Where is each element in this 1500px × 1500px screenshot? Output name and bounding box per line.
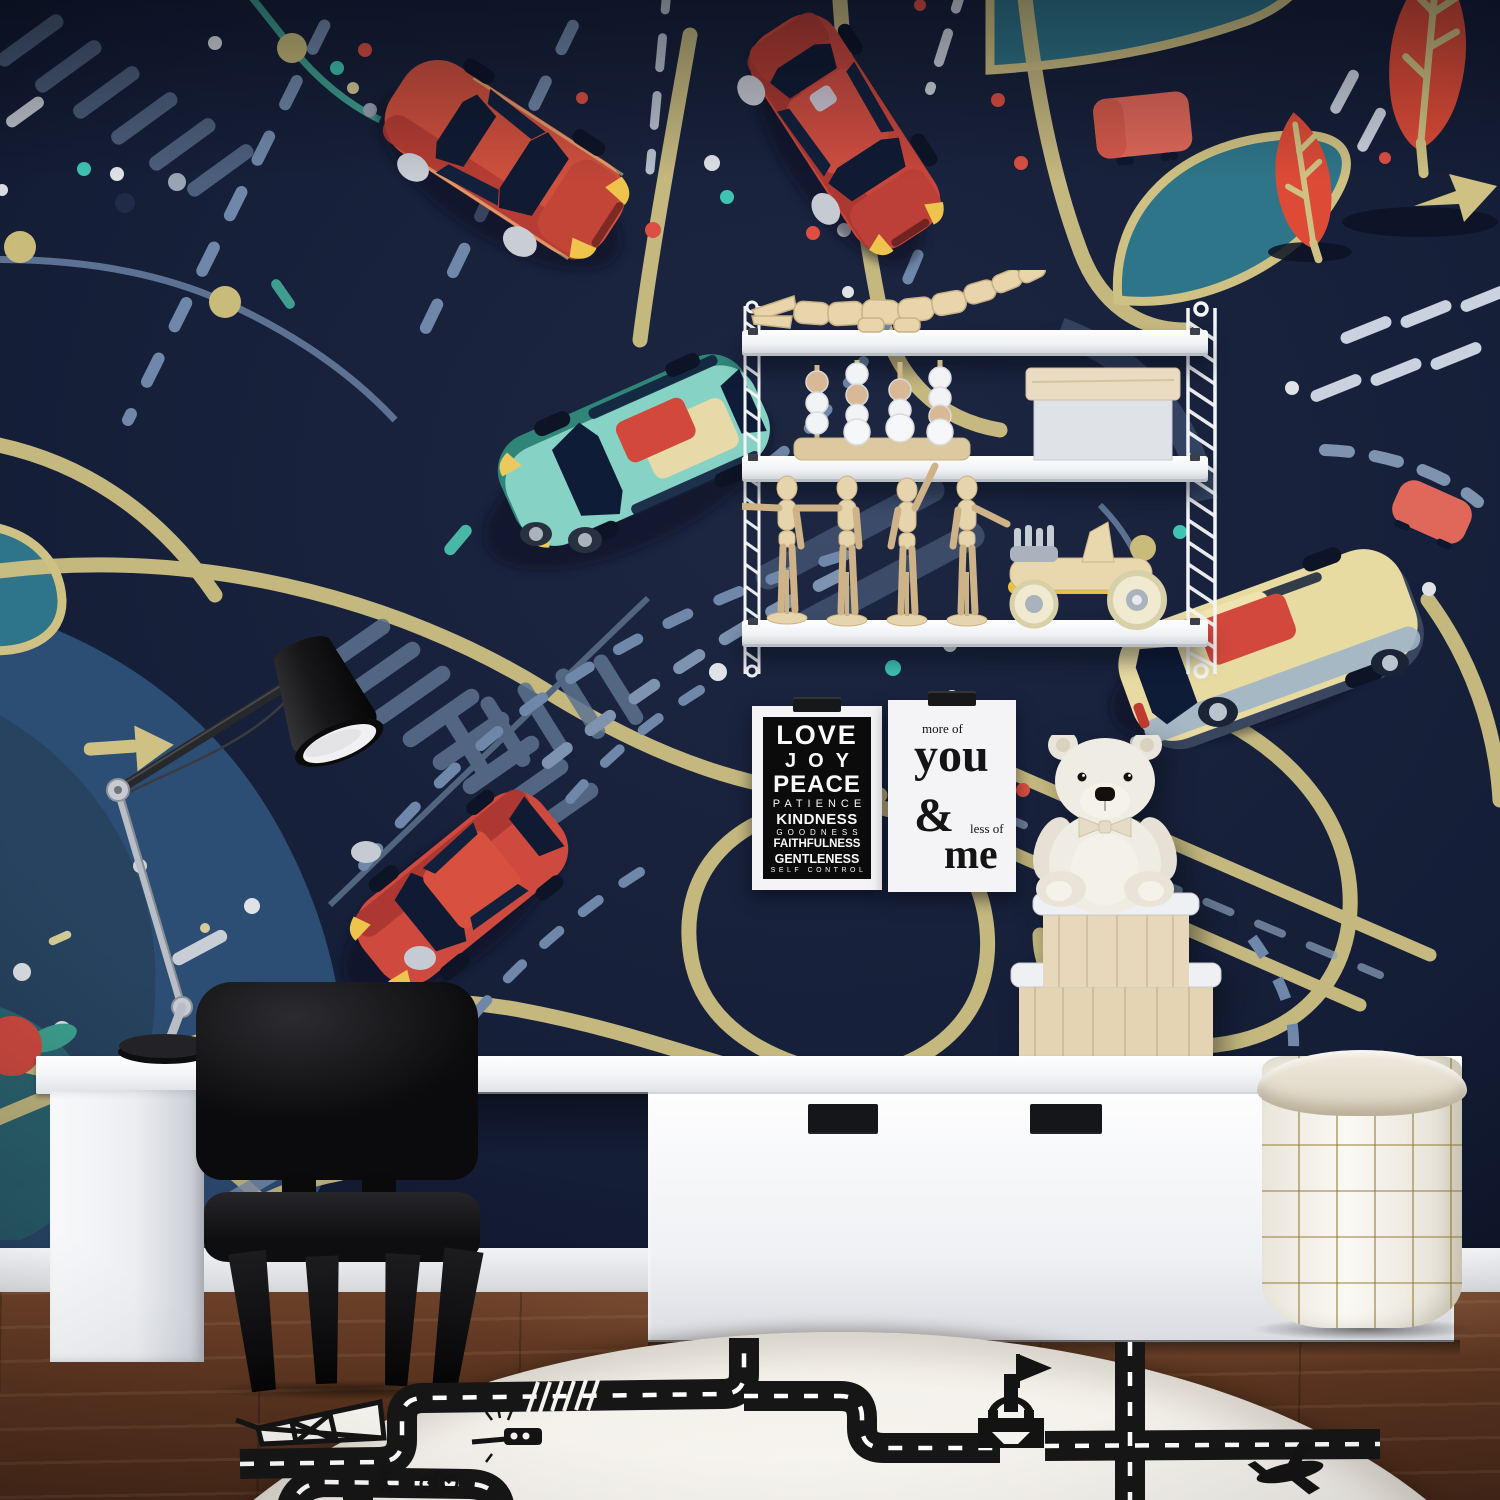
poster-line: PEACE	[773, 773, 861, 797]
poster-line: you	[914, 732, 989, 780]
wooden-storage-box	[1026, 368, 1180, 460]
shelf-toys	[742, 270, 1218, 670]
poster-clip-icon	[928, 691, 976, 706]
poster-line: SELF CONTROL	[771, 867, 867, 874]
rug-traffic-light-icon	[472, 1408, 542, 1462]
poster-line: GOODNESS	[776, 829, 862, 837]
rug-pylon-icon	[236, 1402, 384, 1444]
drawer-handle	[1030, 1104, 1102, 1134]
more-of-you-poster: more of you & less of me	[888, 700, 1016, 892]
poster-line: FAITHFULNESS	[774, 839, 861, 851]
posing-wooden-mannequins	[742, 466, 1007, 626]
drawer-handle	[808, 1104, 878, 1134]
kids-chair-back	[196, 982, 478, 1180]
stacked-wooden-boxes	[1011, 893, 1221, 1067]
kids-chair-seat	[204, 1192, 480, 1262]
rug-road-pattern	[140, 1332, 1500, 1500]
white-teddy-bear	[1026, 735, 1185, 914]
poster-line: PATIENCE	[773, 799, 866, 810]
kids-room-photo: LOVE JOY PEACE PATIENCE KINDNESS GOODNES…	[0, 0, 1500, 1500]
poster-line: me	[944, 834, 998, 876]
teddy-and-boxes	[1005, 735, 1235, 1075]
poster-line: KINDNESS	[776, 812, 858, 827]
poster-clip-icon	[793, 697, 841, 712]
fruits-of-spirit-poster: LOVE JOY PEACE PATIENCE KINDNESS GOODNES…	[752, 706, 882, 890]
wooden-bead-abacus	[794, 360, 970, 460]
wooden-toy-race-car	[1008, 522, 1164, 627]
road-play-rug	[140, 1332, 1500, 1500]
lying-wooden-mannequin	[752, 270, 1048, 332]
poster-line: JOY	[785, 751, 861, 771]
rug-castle-icon	[978, 1354, 1052, 1448]
poster-line: GENTLENESS	[775, 853, 860, 866]
desk-side-panel	[50, 1090, 204, 1362]
lamp-head	[254, 623, 389, 777]
poster-text-panel: LOVE JOY PEACE PATIENCE KINDNESS GOODNES…	[763, 717, 871, 879]
poster-line: LOVE	[776, 722, 858, 749]
